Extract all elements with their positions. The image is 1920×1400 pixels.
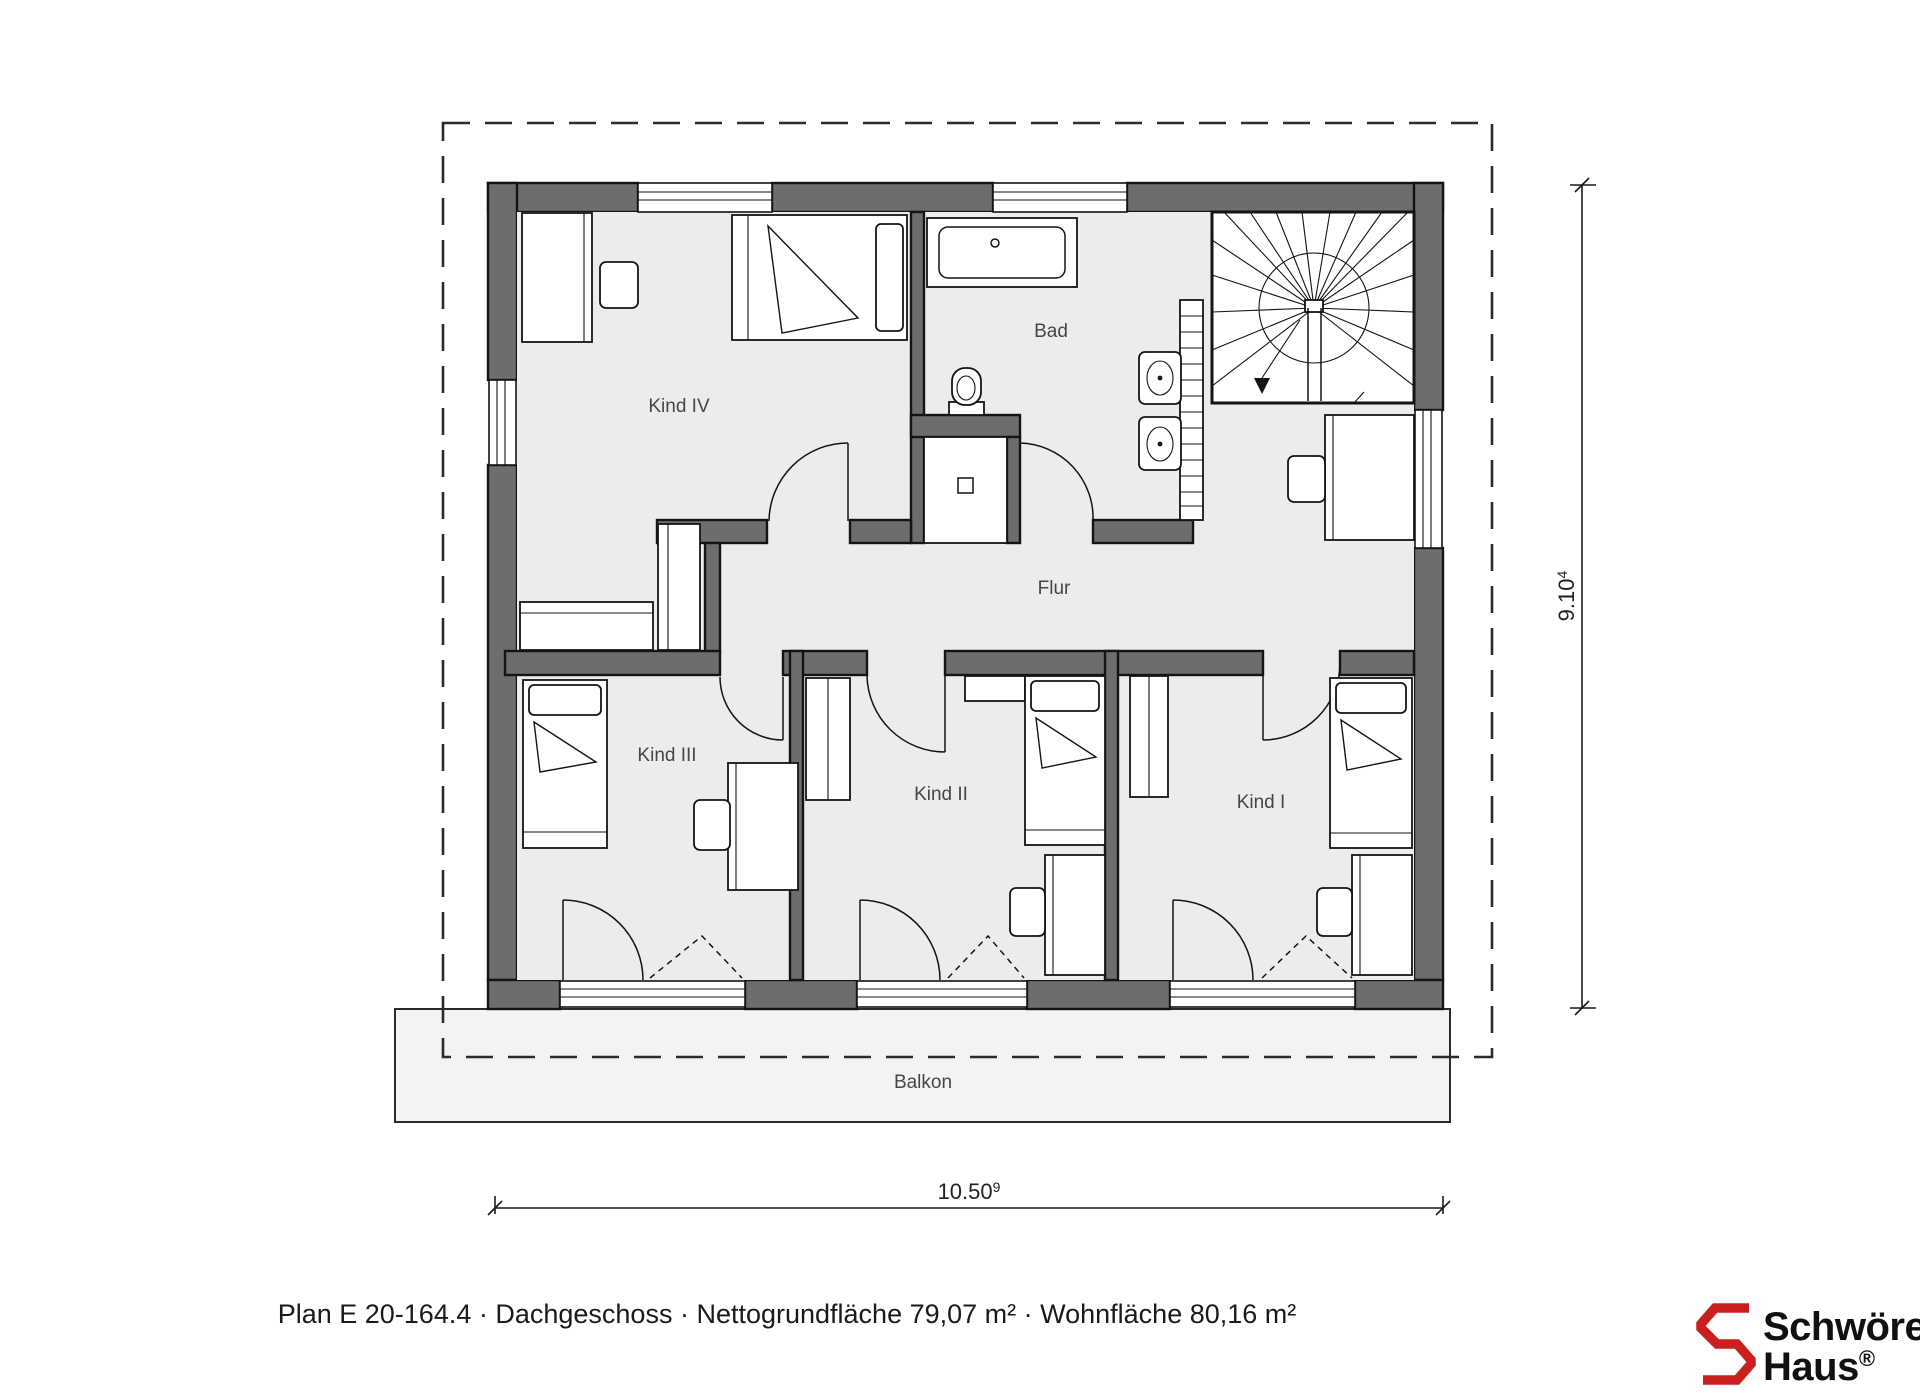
wall-kindiv-bad: [911, 212, 924, 543]
bed: [1330, 678, 1412, 848]
wall-kindiv-flur-right: [850, 520, 911, 543]
bed: [1025, 676, 1105, 845]
wall-shaft-right: [1007, 437, 1020, 543]
sideboard: [520, 602, 653, 650]
wall-bottom-1: [488, 980, 560, 1009]
shaft: [924, 437, 1007, 543]
pillow: [1031, 681, 1099, 711]
logo-line2: Haus®: [1763, 1345, 1875, 1389]
room-label-kind-iii: Kind III: [637, 745, 696, 766]
dimension-height: 9.104: [1554, 178, 1596, 1015]
wall-kindiv-niche: [705, 543, 720, 653]
room-label-flur: Flur: [1038, 578, 1071, 599]
bed: [523, 680, 607, 848]
logo-line1: Schwörer: [1763, 1305, 1920, 1349]
desk: [522, 213, 592, 342]
wall-left-1: [488, 183, 517, 380]
desk: [1352, 855, 1412, 975]
balcony: [395, 1009, 1450, 1122]
wall-right-2: [1414, 548, 1443, 980]
wall-left-2: [488, 465, 517, 980]
chair: [694, 800, 730, 850]
dimension-height-label: 9.104: [1554, 570, 1579, 621]
washbasin: [1139, 352, 1181, 404]
room-label-kind-i: Kind I: [1237, 792, 1286, 813]
schwoerer-s-icon: [1701, 1308, 1751, 1380]
balcony-door-kind-iii: [560, 981, 745, 1007]
window-top-bad: [993, 183, 1127, 212]
window-top-kind-iv: [638, 183, 772, 212]
room-label-bad: Bad: [1034, 321, 1068, 342]
floor-plan-drawing: Kind IV Bad Flur Kind III Kind II Kind I…: [0, 0, 1920, 1400]
pillow: [876, 224, 903, 331]
wall-bottom-3: [1027, 980, 1170, 1009]
dimension-width: 10.509: [488, 1179, 1450, 1215]
wall-bottom-2: [745, 980, 857, 1009]
chair: [1317, 888, 1352, 936]
tall-cabinet: [658, 524, 700, 650]
chair: [1010, 888, 1045, 936]
logo: Schwörer Haus®: [1701, 1305, 1920, 1389]
wall-top-3: [1127, 183, 1443, 212]
bed: [732, 215, 907, 340]
pillow: [529, 685, 601, 715]
balcony-door-kind-ii: [857, 981, 1027, 1007]
wall-kindii-kindi: [1105, 651, 1118, 980]
room-label-kind-ii: Kind II: [914, 784, 968, 805]
wall-bottom-4: [1355, 980, 1443, 1009]
desk: [1325, 415, 1414, 540]
floor-plan-page: Kind IV Bad Flur Kind III Kind II Kind I…: [0, 0, 1920, 1400]
chair: [1288, 456, 1325, 502]
towel-radiator: [1180, 300, 1203, 520]
bathtub: [927, 218, 1077, 287]
wall-right-1: [1414, 183, 1443, 410]
wall-bad-shaft-top: [911, 415, 1020, 437]
stairs: [1212, 212, 1414, 403]
wall-flur-bottom-d: [1340, 651, 1414, 675]
window-right-flur: [1415, 410, 1442, 548]
wall-top-2: [772, 183, 993, 212]
room-label-kind-iv: Kind IV: [648, 396, 710, 417]
desk: [728, 763, 798, 890]
window-left-kind-iv: [489, 380, 516, 465]
balcony-door-kind-i: [1170, 981, 1355, 1007]
wall-bad-flur: [1093, 520, 1193, 543]
desk: [1045, 855, 1105, 975]
dimension-width-label: 10.509: [938, 1179, 1001, 1204]
washbasin: [1139, 417, 1181, 470]
pillow: [1336, 683, 1406, 713]
toilet: [949, 368, 984, 415]
chair: [600, 262, 638, 308]
room-label-balkon: Balkon: [894, 1072, 952, 1093]
closet: [965, 676, 1025, 701]
plan-caption: Plan E 20-164.4 · Dachgeschoss · Nettogr…: [278, 1299, 1297, 1329]
wall-flur-bottom-a: [505, 651, 720, 675]
